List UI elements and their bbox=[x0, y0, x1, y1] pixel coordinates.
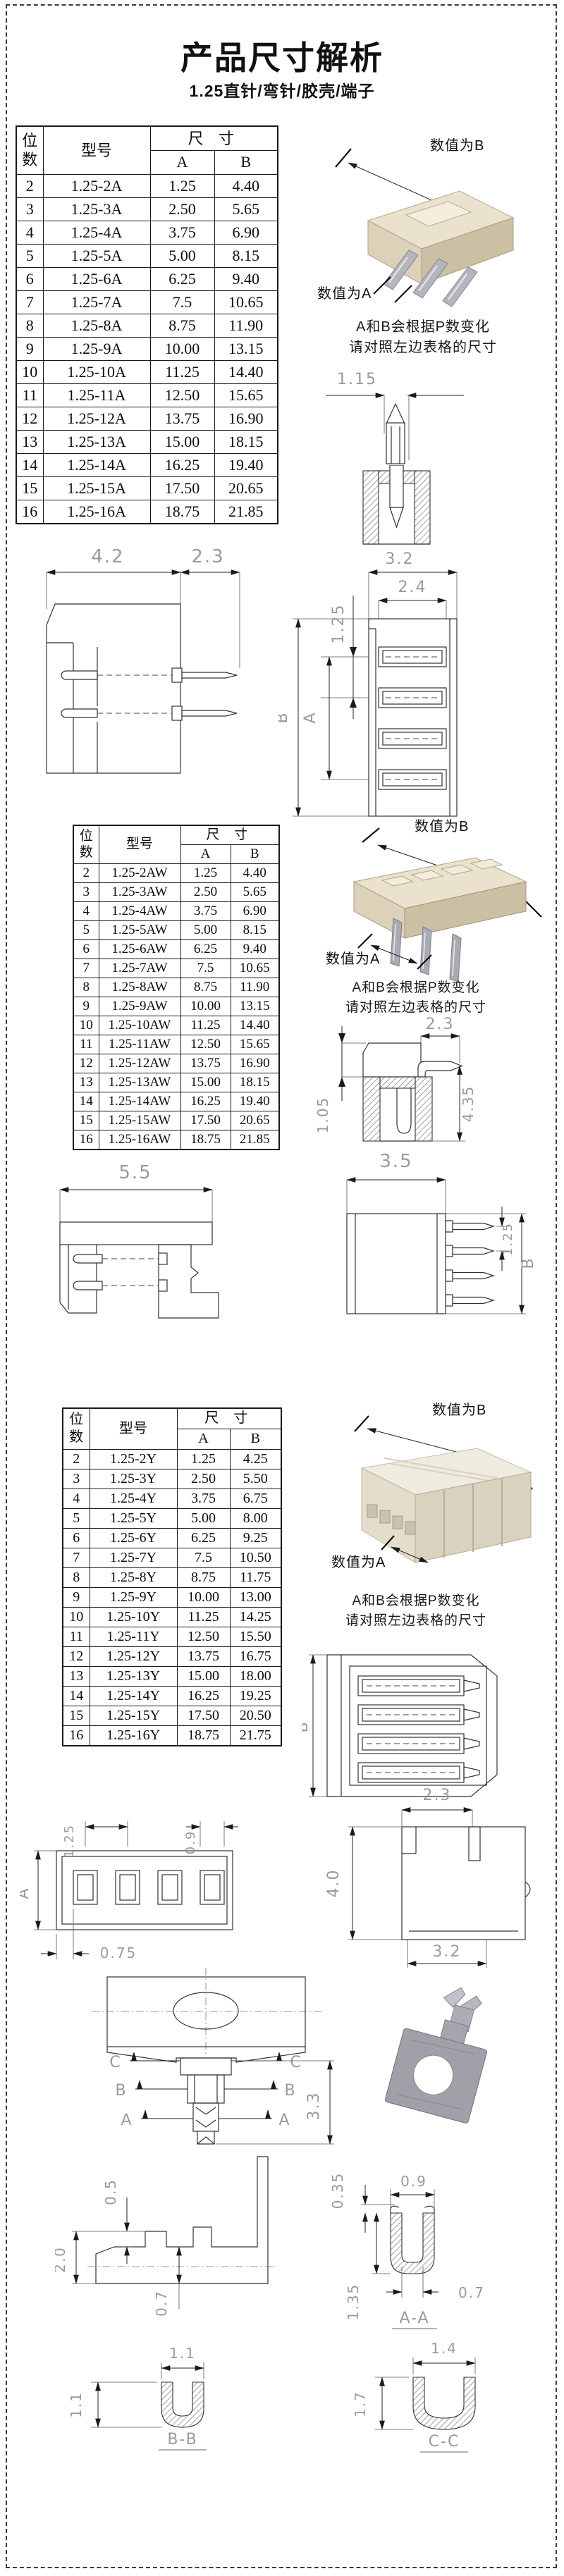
bent-side-view-drawing: 5.5 bbox=[53, 1161, 222, 1334]
table-cell: 12.50 bbox=[177, 1627, 230, 1646]
table-cell: 1.25 bbox=[180, 863, 231, 882]
col-header-positions: 位数 bbox=[16, 126, 43, 174]
table-cell: 1.25-4AW bbox=[99, 901, 180, 920]
note-line1: A和B会根据P数变化 bbox=[303, 317, 543, 338]
section-b-left: B bbox=[115, 2082, 127, 2100]
table-cell: 10 bbox=[16, 360, 43, 383]
table-cell: 1.25-3Y bbox=[90, 1469, 177, 1489]
table-cell: 11.90 bbox=[214, 314, 278, 337]
bent-front-view-drawing: 3.5 1.25 B bbox=[296, 1150, 539, 1323]
crimp-section bbox=[161, 2382, 204, 2427]
table-row: 71.25-7A7.510.65 bbox=[16, 290, 278, 314]
col-header-b: B bbox=[230, 1429, 281, 1449]
table-cell: 9 bbox=[73, 997, 99, 1016]
table-row: 111.25-11A12.5015.65 bbox=[16, 383, 278, 407]
housing-cross-section bbox=[363, 465, 430, 544]
terminal-stamping-drawing: C C B B A A 3.3 bbox=[92, 1968, 338, 2158]
table-cell: 1.25-13Y bbox=[90, 1666, 177, 1686]
section-cc-drawing: 1.4 1.7 C-C bbox=[345, 2336, 550, 2456]
table-cell: 1.25-10A bbox=[43, 360, 150, 383]
table-cell: 5.00 bbox=[177, 1508, 230, 1528]
table-cell: 18.75 bbox=[180, 1130, 231, 1150]
table-cell: 7.5 bbox=[150, 290, 214, 314]
table-cell: 15 bbox=[16, 476, 43, 500]
col-header-a: A bbox=[150, 150, 214, 174]
section-markers: C C B B A A bbox=[109, 2052, 302, 2129]
table-cell: 1.25-9A bbox=[43, 337, 150, 360]
table-cell: 1.25-9AW bbox=[99, 997, 180, 1016]
table-cell: 1.25-11A bbox=[43, 383, 150, 407]
dim-1-4: 1.4 bbox=[431, 2340, 458, 2357]
table-cell: 19.25 bbox=[230, 1686, 281, 1706]
dim-4-2: 4.2 bbox=[91, 546, 124, 567]
table-cell: 16 bbox=[16, 500, 43, 524]
table-cell: 3.75 bbox=[180, 901, 231, 920]
dim-1-1-h: 1.1 bbox=[68, 2391, 85, 2418]
col-header-a: A bbox=[177, 1429, 230, 1449]
top-plate bbox=[363, 1043, 421, 1077]
table-cell: 8.75 bbox=[177, 1567, 230, 1587]
table-cell: 1.25-8A bbox=[43, 314, 150, 337]
bent-connector-photo: 数值为B 数值为A bbox=[317, 814, 550, 983]
dim-3-2: 3.2 bbox=[433, 1943, 462, 1961]
table-cell: 17.50 bbox=[180, 1111, 231, 1130]
dim-1-25-pitch: 1.25 bbox=[62, 1824, 77, 1858]
housing-body bbox=[362, 1448, 531, 1563]
table-cell: 10.00 bbox=[180, 997, 231, 1016]
dim-1-15: 1.15 bbox=[337, 371, 377, 388]
table-row: 101.25-10AW11.2514.40 bbox=[73, 1016, 279, 1035]
table-row: 41.25-4Y3.756.75 bbox=[63, 1489, 281, 1508]
table-cell: 21.85 bbox=[214, 500, 278, 524]
table-cell: 13.00 bbox=[230, 1587, 281, 1607]
table-cell: 15.00 bbox=[150, 430, 214, 453]
straight-front-view-drawing: 3.2 2.4 1.25 A B bbox=[278, 465, 539, 821]
table-cell: 4.40 bbox=[231, 863, 279, 882]
table-row: 121.25-12AW13.7516.90 bbox=[73, 1054, 279, 1073]
dim-0-7: 0.7 bbox=[458, 2284, 485, 2301]
table-row: 41.25-4A3.756.90 bbox=[16, 221, 278, 244]
table-cell: 1.25-14A bbox=[43, 453, 150, 476]
table-row: 151.25-15A17.5020.65 bbox=[16, 476, 278, 500]
col-header-size: 尺 寸 bbox=[180, 825, 279, 844]
table-row: 141.25-14A16.2519.40 bbox=[16, 453, 278, 476]
table-cell: 16.90 bbox=[231, 1054, 279, 1073]
pin-row-1 bbox=[73, 1253, 167, 1264]
table-cell: 6 bbox=[63, 1528, 90, 1548]
value-b-label: 数值为B bbox=[432, 1402, 486, 1418]
table-cell: 13 bbox=[63, 1666, 90, 1686]
table-row: 21.25-2A1.254.40 bbox=[16, 174, 278, 197]
bent-cross-section-drawing: 2.3 1.05 4.35 bbox=[314, 1016, 539, 1150]
col-header-positions: 位数 bbox=[73, 825, 99, 863]
note-bent: A和B会根据P数变化 请对照左边表格的尺寸 bbox=[310, 978, 522, 1018]
table-cell: 1.25-3A bbox=[43, 197, 150, 221]
table-cell: 1.25-12AW bbox=[99, 1054, 180, 1073]
dim-4-35: 4.35 bbox=[460, 1085, 477, 1123]
table-cell: 8.15 bbox=[214, 244, 278, 267]
section-b-right: B bbox=[284, 2082, 296, 2100]
table-cell: 15 bbox=[73, 1111, 99, 1130]
table-row: 151.25-15Y17.5020.50 bbox=[63, 1706, 281, 1725]
section-bb-drawing: 1.1 1.1 B-B bbox=[60, 2340, 271, 2453]
dim-5-5: 5.5 bbox=[118, 1162, 152, 1183]
dim-b: B bbox=[278, 711, 291, 723]
col-header-model: 型号 bbox=[99, 825, 180, 863]
table-cell: 19.40 bbox=[214, 453, 278, 476]
table-cell: 18.15 bbox=[231, 1073, 279, 1092]
table-cell: 3.75 bbox=[177, 1489, 230, 1508]
table-cell: 10.65 bbox=[214, 290, 278, 314]
table-cell: 20.50 bbox=[230, 1706, 281, 1725]
table-cell: 13.75 bbox=[150, 407, 214, 430]
section-aa-label: A-A bbox=[399, 2310, 429, 2327]
table-cell: 2.50 bbox=[150, 197, 214, 221]
housing-outline bbox=[47, 604, 180, 773]
table-cell: 5.50 bbox=[230, 1469, 281, 1489]
table-cell: 1.25-6A bbox=[43, 267, 150, 290]
table-cell: 8.15 bbox=[231, 920, 279, 939]
dim-0-75: 0.75 bbox=[100, 1945, 137, 1961]
table-cell: 1.25-5AW bbox=[99, 920, 180, 939]
dim-1-25-pitch: 1.25 bbox=[330, 604, 348, 644]
housing-slots bbox=[358, 1676, 479, 1782]
value-a-label: 数值为A bbox=[326, 951, 380, 967]
table-row: 101.25-10Y11.2514.25 bbox=[63, 1607, 281, 1627]
table-cell: 11 bbox=[73, 1035, 99, 1054]
table-cell: 1.25 bbox=[150, 174, 214, 197]
table-cell: 1.25-5Y bbox=[90, 1508, 177, 1528]
section-aa-drawing: 0.35 0.9 0.7 1.35 A-A bbox=[317, 2150, 522, 2336]
table-cell: 1.25-4A bbox=[43, 221, 150, 244]
table-cell: 16 bbox=[63, 1725, 90, 1746]
table-cell: 9.40 bbox=[231, 939, 279, 959]
page: 产品尺寸解析 1.25直针/弯针/胶壳/端子 位数 型号 尺 寸 A B 21.… bbox=[0, 0, 564, 2576]
pin-outline bbox=[386, 404, 405, 464]
dim-2-3: 2.3 bbox=[426, 1016, 455, 1033]
table-row: 61.25-6AW6.259.40 bbox=[73, 939, 279, 959]
housing-size-table: 位数 型号 尺 寸 A B 21.25-2Y1.254.2531.25-3Y2.… bbox=[62, 1407, 282, 1746]
table-row: 61.25-6Y6.259.25 bbox=[63, 1528, 281, 1548]
table-cell: 14.40 bbox=[231, 1016, 279, 1035]
table-cell: 14 bbox=[63, 1686, 90, 1706]
table-cell: 18.15 bbox=[214, 430, 278, 453]
pin-row-2 bbox=[61, 706, 237, 720]
col-header-model: 型号 bbox=[90, 1408, 177, 1449]
table-cell: 5.00 bbox=[180, 920, 231, 939]
table-row: 161.25-16Y18.7521.75 bbox=[63, 1725, 281, 1746]
table-cell: 21.75 bbox=[230, 1725, 281, 1746]
terminal-metal bbox=[385, 1984, 501, 2124]
table-cell: 10 bbox=[73, 1016, 99, 1035]
table-cell: 10.65 bbox=[231, 959, 279, 978]
table-cell: 12 bbox=[16, 407, 43, 430]
body-outline bbox=[56, 1851, 233, 1930]
table-cell: 6.90 bbox=[214, 221, 278, 244]
page-subtitle: 1.25直针/弯针/胶壳/端子 bbox=[0, 78, 564, 101]
table-cell: 1.25-6Y bbox=[90, 1528, 177, 1548]
terminal-side-view-drawing: 0.5 2.0 0.7 bbox=[55, 2148, 291, 2321]
dim-1-1-w: 1.1 bbox=[169, 2345, 196, 2362]
dim-1-7: 1.7 bbox=[352, 2391, 369, 2417]
table-cell: 6.90 bbox=[231, 901, 279, 920]
table-cell: 1.25-7AW bbox=[99, 959, 180, 978]
table-row: 141.25-14AW16.2519.40 bbox=[73, 1092, 279, 1111]
body-outline bbox=[402, 1827, 530, 1940]
table-cell: 7 bbox=[63, 1548, 90, 1567]
table-cell: 16.75 bbox=[230, 1646, 281, 1666]
table-cell: 8.00 bbox=[230, 1508, 281, 1528]
table-cell: 1.25-11Y bbox=[90, 1627, 177, 1646]
section-a-left: A bbox=[121, 2112, 133, 2129]
table-row: 91.25-9Y10.0013.00 bbox=[63, 1587, 281, 1607]
table-row: 131.25-13A15.0018.15 bbox=[16, 430, 278, 453]
table-row: 91.25-9AW10.0013.15 bbox=[73, 997, 279, 1016]
table-cell: 1.25-16A bbox=[43, 500, 150, 524]
terminal-photo bbox=[372, 1984, 513, 2136]
table-row: 161.25-16AW18.7521.85 bbox=[73, 1130, 279, 1150]
table-cell: 8.75 bbox=[150, 314, 214, 337]
table-cell: 13 bbox=[16, 430, 43, 453]
dim-0-9: 0.9 bbox=[183, 1830, 198, 1855]
col-header-b: B bbox=[231, 844, 279, 863]
table-cell: 5.65 bbox=[231, 882, 279, 901]
dim-b: B bbox=[520, 1257, 537, 1269]
table-cell: 1.25-16Y bbox=[90, 1725, 177, 1746]
table-row: 81.25-8Y8.7511.75 bbox=[63, 1567, 281, 1587]
body-outline bbox=[60, 1222, 219, 1318]
dim-2-4: 2.4 bbox=[398, 579, 427, 596]
table-cell: 6 bbox=[73, 939, 99, 959]
dim-0-5: 0.5 bbox=[102, 2178, 119, 2205]
table-cell: 17.50 bbox=[150, 476, 214, 500]
table-cell: 20.65 bbox=[214, 476, 278, 500]
table-cell: 2 bbox=[63, 1449, 90, 1469]
table-row: 71.25-7AW7.510.65 bbox=[73, 959, 279, 978]
table-cell: 1.25-13AW bbox=[99, 1073, 180, 1092]
table-row: 111.25-11AW12.5015.65 bbox=[73, 1035, 279, 1054]
table-cell: 6.25 bbox=[177, 1528, 230, 1548]
straight-connector-photo: 数值为B 数值为A bbox=[303, 130, 546, 312]
note-line2: 请对照左边表格的尺寸 bbox=[310, 998, 522, 1018]
value-b-label: 数值为B bbox=[415, 818, 469, 834]
pin-row-1 bbox=[61, 668, 237, 682]
table-cell: 1.25-7Y bbox=[90, 1548, 177, 1567]
connector-body bbox=[354, 858, 526, 938]
table-row: 121.25-12A13.7516.90 bbox=[16, 407, 278, 430]
table-cell: 1.25-2AW bbox=[99, 863, 180, 882]
table-cell: 4.25 bbox=[230, 1449, 281, 1469]
section-c-right: C bbox=[290, 2054, 302, 2071]
note-line1: A和B会根据P数变化 bbox=[303, 1591, 529, 1611]
carrier-strip bbox=[107, 1977, 305, 2047]
table-cell: 6.25 bbox=[150, 267, 214, 290]
table-cell: 1.25-2Y bbox=[90, 1449, 177, 1469]
table-cell: 11.75 bbox=[230, 1567, 281, 1587]
note-line1: A和B会根据P数变化 bbox=[310, 978, 522, 998]
value-b-label: 数值为B bbox=[430, 137, 484, 154]
dim-2-3: 2.3 bbox=[191, 546, 224, 567]
dim-3-2: 3.2 bbox=[386, 550, 415, 568]
table-cell: 3 bbox=[73, 882, 99, 901]
table-cell: 5.65 bbox=[214, 197, 278, 221]
table-cell: 1.25-15A bbox=[43, 476, 150, 500]
table-cell: 13 bbox=[73, 1073, 99, 1092]
pin-row-2 bbox=[73, 1280, 167, 1291]
col-header-positions: 位数 bbox=[63, 1408, 90, 1449]
table-row: 51.25-5A5.008.15 bbox=[16, 244, 278, 267]
table-cell: 1.25-10AW bbox=[99, 1016, 180, 1035]
dim-2-0: 2.0 bbox=[55, 2246, 68, 2273]
table-cell: 13.15 bbox=[214, 337, 278, 360]
table-row: 51.25-5Y5.008.00 bbox=[63, 1508, 281, 1528]
table-cell: 16 bbox=[73, 1130, 99, 1150]
table-row: 31.25-3Y2.505.50 bbox=[63, 1469, 281, 1489]
dim-0-35: 0.35 bbox=[329, 2172, 346, 2210]
section-c-left: C bbox=[109, 2054, 121, 2071]
table-cell: 1.25-6AW bbox=[99, 939, 180, 959]
table-cell: 18.00 bbox=[230, 1666, 281, 1686]
table-row: 31.25-3AW2.505.65 bbox=[73, 882, 279, 901]
table-cell: 17.50 bbox=[177, 1706, 230, 1725]
straight-pin-size-table: 位数 型号 尺 寸 A B 21.25-2A1.254.4031.25-3A2.… bbox=[16, 125, 278, 524]
table-cell: 6.25 bbox=[180, 939, 231, 959]
table-cell: 1.25-5A bbox=[43, 244, 150, 267]
table-cell: 5.00 bbox=[150, 244, 214, 267]
table-cell: 7.5 bbox=[180, 959, 231, 978]
table-cell: 1.25-12Y bbox=[90, 1646, 177, 1666]
table-cell: 5 bbox=[73, 920, 99, 939]
dim-1-35: 1.35 bbox=[345, 2284, 362, 2321]
body-outline bbox=[347, 1214, 446, 1314]
housing-side-view-drawing: 2.3 4.0 3.2 bbox=[324, 1783, 536, 1970]
table-cell: 1.25-8AW bbox=[99, 978, 180, 997]
table-cell: 1.25-12A bbox=[43, 407, 150, 430]
value-a-label: 数值为A bbox=[317, 285, 372, 302]
table-cell: 4 bbox=[73, 901, 99, 920]
table-cell: 11.25 bbox=[177, 1607, 230, 1627]
table-cell: 12.50 bbox=[150, 383, 214, 407]
table-cell: 13.15 bbox=[231, 997, 279, 1016]
table-row: 131.25-13AW15.0018.15 bbox=[73, 1073, 279, 1092]
table-cell: 11.25 bbox=[150, 360, 214, 383]
table-cell: 12.50 bbox=[180, 1035, 231, 1054]
table-row: 131.25-13Y15.0018.00 bbox=[63, 1666, 281, 1686]
table-cell: 12 bbox=[73, 1054, 99, 1073]
table-row: 101.25-10A11.2514.40 bbox=[16, 360, 278, 383]
dim-3-5: 3.5 bbox=[379, 1151, 412, 1172]
table-cell: 1.25-14Y bbox=[90, 1686, 177, 1706]
section-cc-label: C-C bbox=[429, 2433, 460, 2451]
dim-tick bbox=[336, 149, 351, 167]
table-cell: 1.25-11AW bbox=[99, 1035, 180, 1054]
table-cell: 16.25 bbox=[180, 1092, 231, 1111]
table-cell: 11.25 bbox=[180, 1016, 231, 1035]
table-cell: 4.40 bbox=[214, 174, 278, 197]
table-row: 141.25-14Y16.2519.25 bbox=[63, 1686, 281, 1706]
bent-pin bbox=[418, 1061, 462, 1077]
table-cell: 20.65 bbox=[231, 1111, 279, 1130]
table-cell: 14.40 bbox=[214, 360, 278, 383]
table-row: 111.25-11Y12.5015.50 bbox=[63, 1627, 281, 1646]
table-cell: 18.75 bbox=[177, 1725, 230, 1746]
table-cell: 9 bbox=[63, 1587, 90, 1607]
table-row: 71.25-7Y7.510.50 bbox=[63, 1548, 281, 1567]
table-cell: 1.25 bbox=[177, 1449, 230, 1469]
dim-0-7: 0.7 bbox=[153, 2290, 170, 2317]
table-cell: 1.25-15AW bbox=[99, 1111, 180, 1130]
table-cell: 15.00 bbox=[177, 1666, 230, 1686]
front-view-slots bbox=[379, 647, 446, 789]
dim-2-3: 2.3 bbox=[423, 1787, 452, 1804]
housing-rear-view-drawing: 1.25 0.9 A 0.75 bbox=[20, 1810, 238, 1979]
table-cell: 10.00 bbox=[177, 1587, 230, 1607]
table-cell: 10.00 bbox=[150, 337, 214, 360]
housing-hatched bbox=[363, 1077, 432, 1141]
table-cell: 3.75 bbox=[150, 221, 214, 244]
table-cell: 1.25-4Y bbox=[90, 1489, 177, 1508]
table-cell: 1.25-7A bbox=[43, 290, 150, 314]
table-cell: 14.25 bbox=[230, 1607, 281, 1627]
table-cell: 1.25-9Y bbox=[90, 1587, 177, 1607]
table-cell: 10.50 bbox=[230, 1548, 281, 1567]
dim-a: A bbox=[20, 1887, 32, 1899]
table-cell: 11 bbox=[63, 1627, 90, 1646]
col-header-a: A bbox=[180, 844, 231, 863]
table-cell: 1.25-14AW bbox=[99, 1092, 180, 1111]
table-cell: 2.50 bbox=[180, 882, 231, 901]
dim-b: B bbox=[302, 1720, 312, 1732]
table-cell: 15 bbox=[63, 1706, 90, 1725]
table-cell: 6.75 bbox=[230, 1489, 281, 1508]
pins bbox=[446, 1221, 493, 1306]
col-header-b: B bbox=[214, 150, 278, 174]
crimp-section bbox=[413, 2377, 475, 2429]
table-cell: 16.25 bbox=[177, 1686, 230, 1706]
table-cell: 7 bbox=[16, 290, 43, 314]
table-cell: 1.25-8Y bbox=[90, 1567, 177, 1587]
table-cell: 7.5 bbox=[177, 1548, 230, 1567]
page-title: 产品尺寸解析 bbox=[0, 32, 564, 79]
table-cell: 9.25 bbox=[230, 1528, 281, 1548]
table-cell: 2 bbox=[16, 174, 43, 197]
table-cell: 3 bbox=[63, 1469, 90, 1489]
table-cell: 9 bbox=[16, 337, 43, 360]
table-cell: 13.75 bbox=[180, 1054, 231, 1073]
table-row: 41.25-4AW3.756.90 bbox=[73, 901, 279, 920]
table-cell: 5 bbox=[63, 1508, 90, 1528]
note-line2: 请对照左边表格的尺寸 bbox=[303, 338, 543, 358]
note-housing: A和B会根据P数变化 请对照左边表格的尺寸 bbox=[303, 1591, 529, 1631]
table-cell: 1.25-16AW bbox=[99, 1130, 180, 1150]
table-cell: 21.85 bbox=[231, 1130, 279, 1150]
table-cell: 4 bbox=[16, 221, 43, 244]
table-cell: 10 bbox=[63, 1607, 90, 1627]
table-cell: 8.75 bbox=[180, 978, 231, 997]
table-cell: 11.90 bbox=[231, 978, 279, 997]
table-cell: 11 bbox=[16, 383, 43, 407]
table-row: 51.25-5AW5.008.15 bbox=[73, 920, 279, 939]
table-cell: 15.50 bbox=[230, 1627, 281, 1646]
table-cell: 12 bbox=[63, 1646, 90, 1666]
table-cell: 3 bbox=[16, 197, 43, 221]
table-row: 31.25-3A2.505.65 bbox=[16, 197, 278, 221]
note-line2: 请对照左边表格的尺寸 bbox=[303, 1611, 529, 1631]
shoulders bbox=[107, 2047, 305, 2062]
table-cell: 15.65 bbox=[214, 383, 278, 407]
table-row: 121.25-12Y13.7516.75 bbox=[63, 1646, 281, 1666]
table-row: 91.25-9A10.0013.15 bbox=[16, 337, 278, 360]
